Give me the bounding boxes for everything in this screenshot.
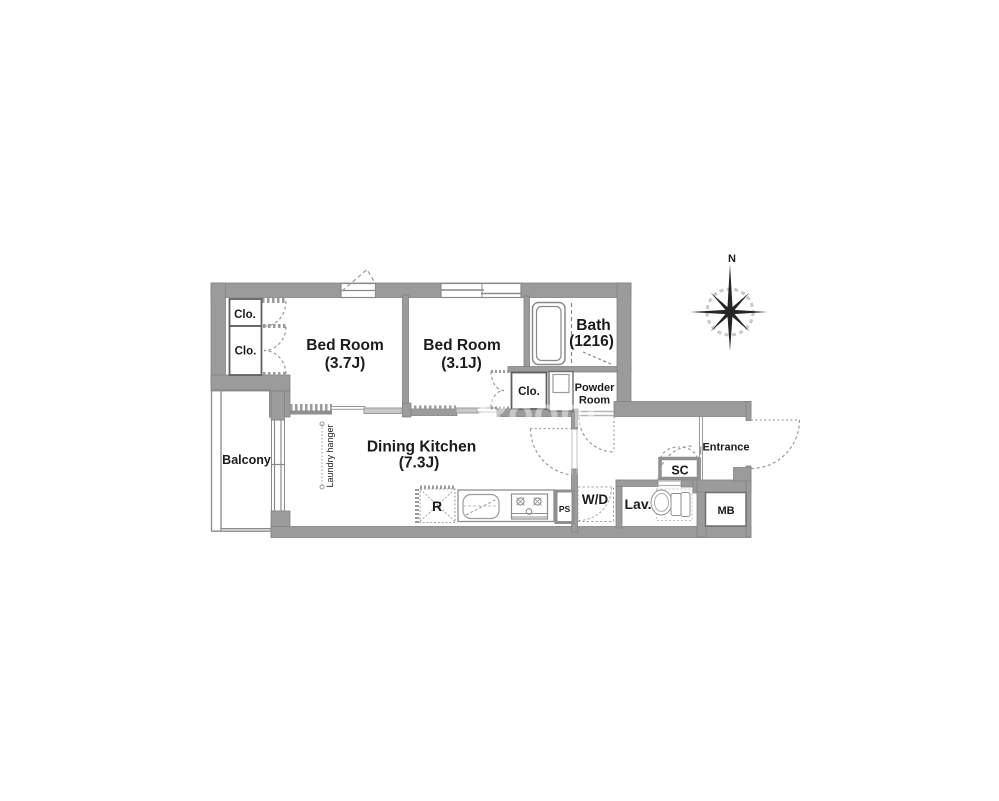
svg-text:N: N (728, 253, 736, 265)
svg-text:Laundry hanger: Laundry hanger (325, 424, 335, 487)
svg-text:SC: SC (671, 464, 688, 478)
svg-text:Dining Kitchen: Dining Kitchen (367, 439, 476, 456)
svg-text:Clo.: Clo. (235, 346, 257, 358)
svg-text:(7.3J): (7.3J) (399, 455, 440, 472)
svg-text:Room: Room (478, 389, 597, 436)
svg-text:W/D: W/D (582, 492, 608, 507)
svg-text:(1216): (1216) (569, 333, 614, 350)
svg-text:Bath: Bath (576, 317, 610, 334)
svg-text:MB: MB (717, 505, 734, 517)
svg-text:Bed Room: Bed Room (306, 337, 384, 354)
svg-text:Entrance: Entrance (702, 442, 749, 454)
svg-text:Balcony: Balcony (222, 453, 271, 467)
svg-text:Clo.: Clo. (234, 309, 256, 321)
svg-text:Lav.: Lav. (625, 496, 652, 512)
svg-text:(3.1J): (3.1J) (441, 355, 482, 372)
svg-text:PS: PS (559, 504, 571, 514)
svg-text:R: R (432, 498, 442, 514)
svg-text:Bed Room: Bed Room (423, 337, 501, 354)
svg-text:(3.7J): (3.7J) (325, 355, 366, 372)
